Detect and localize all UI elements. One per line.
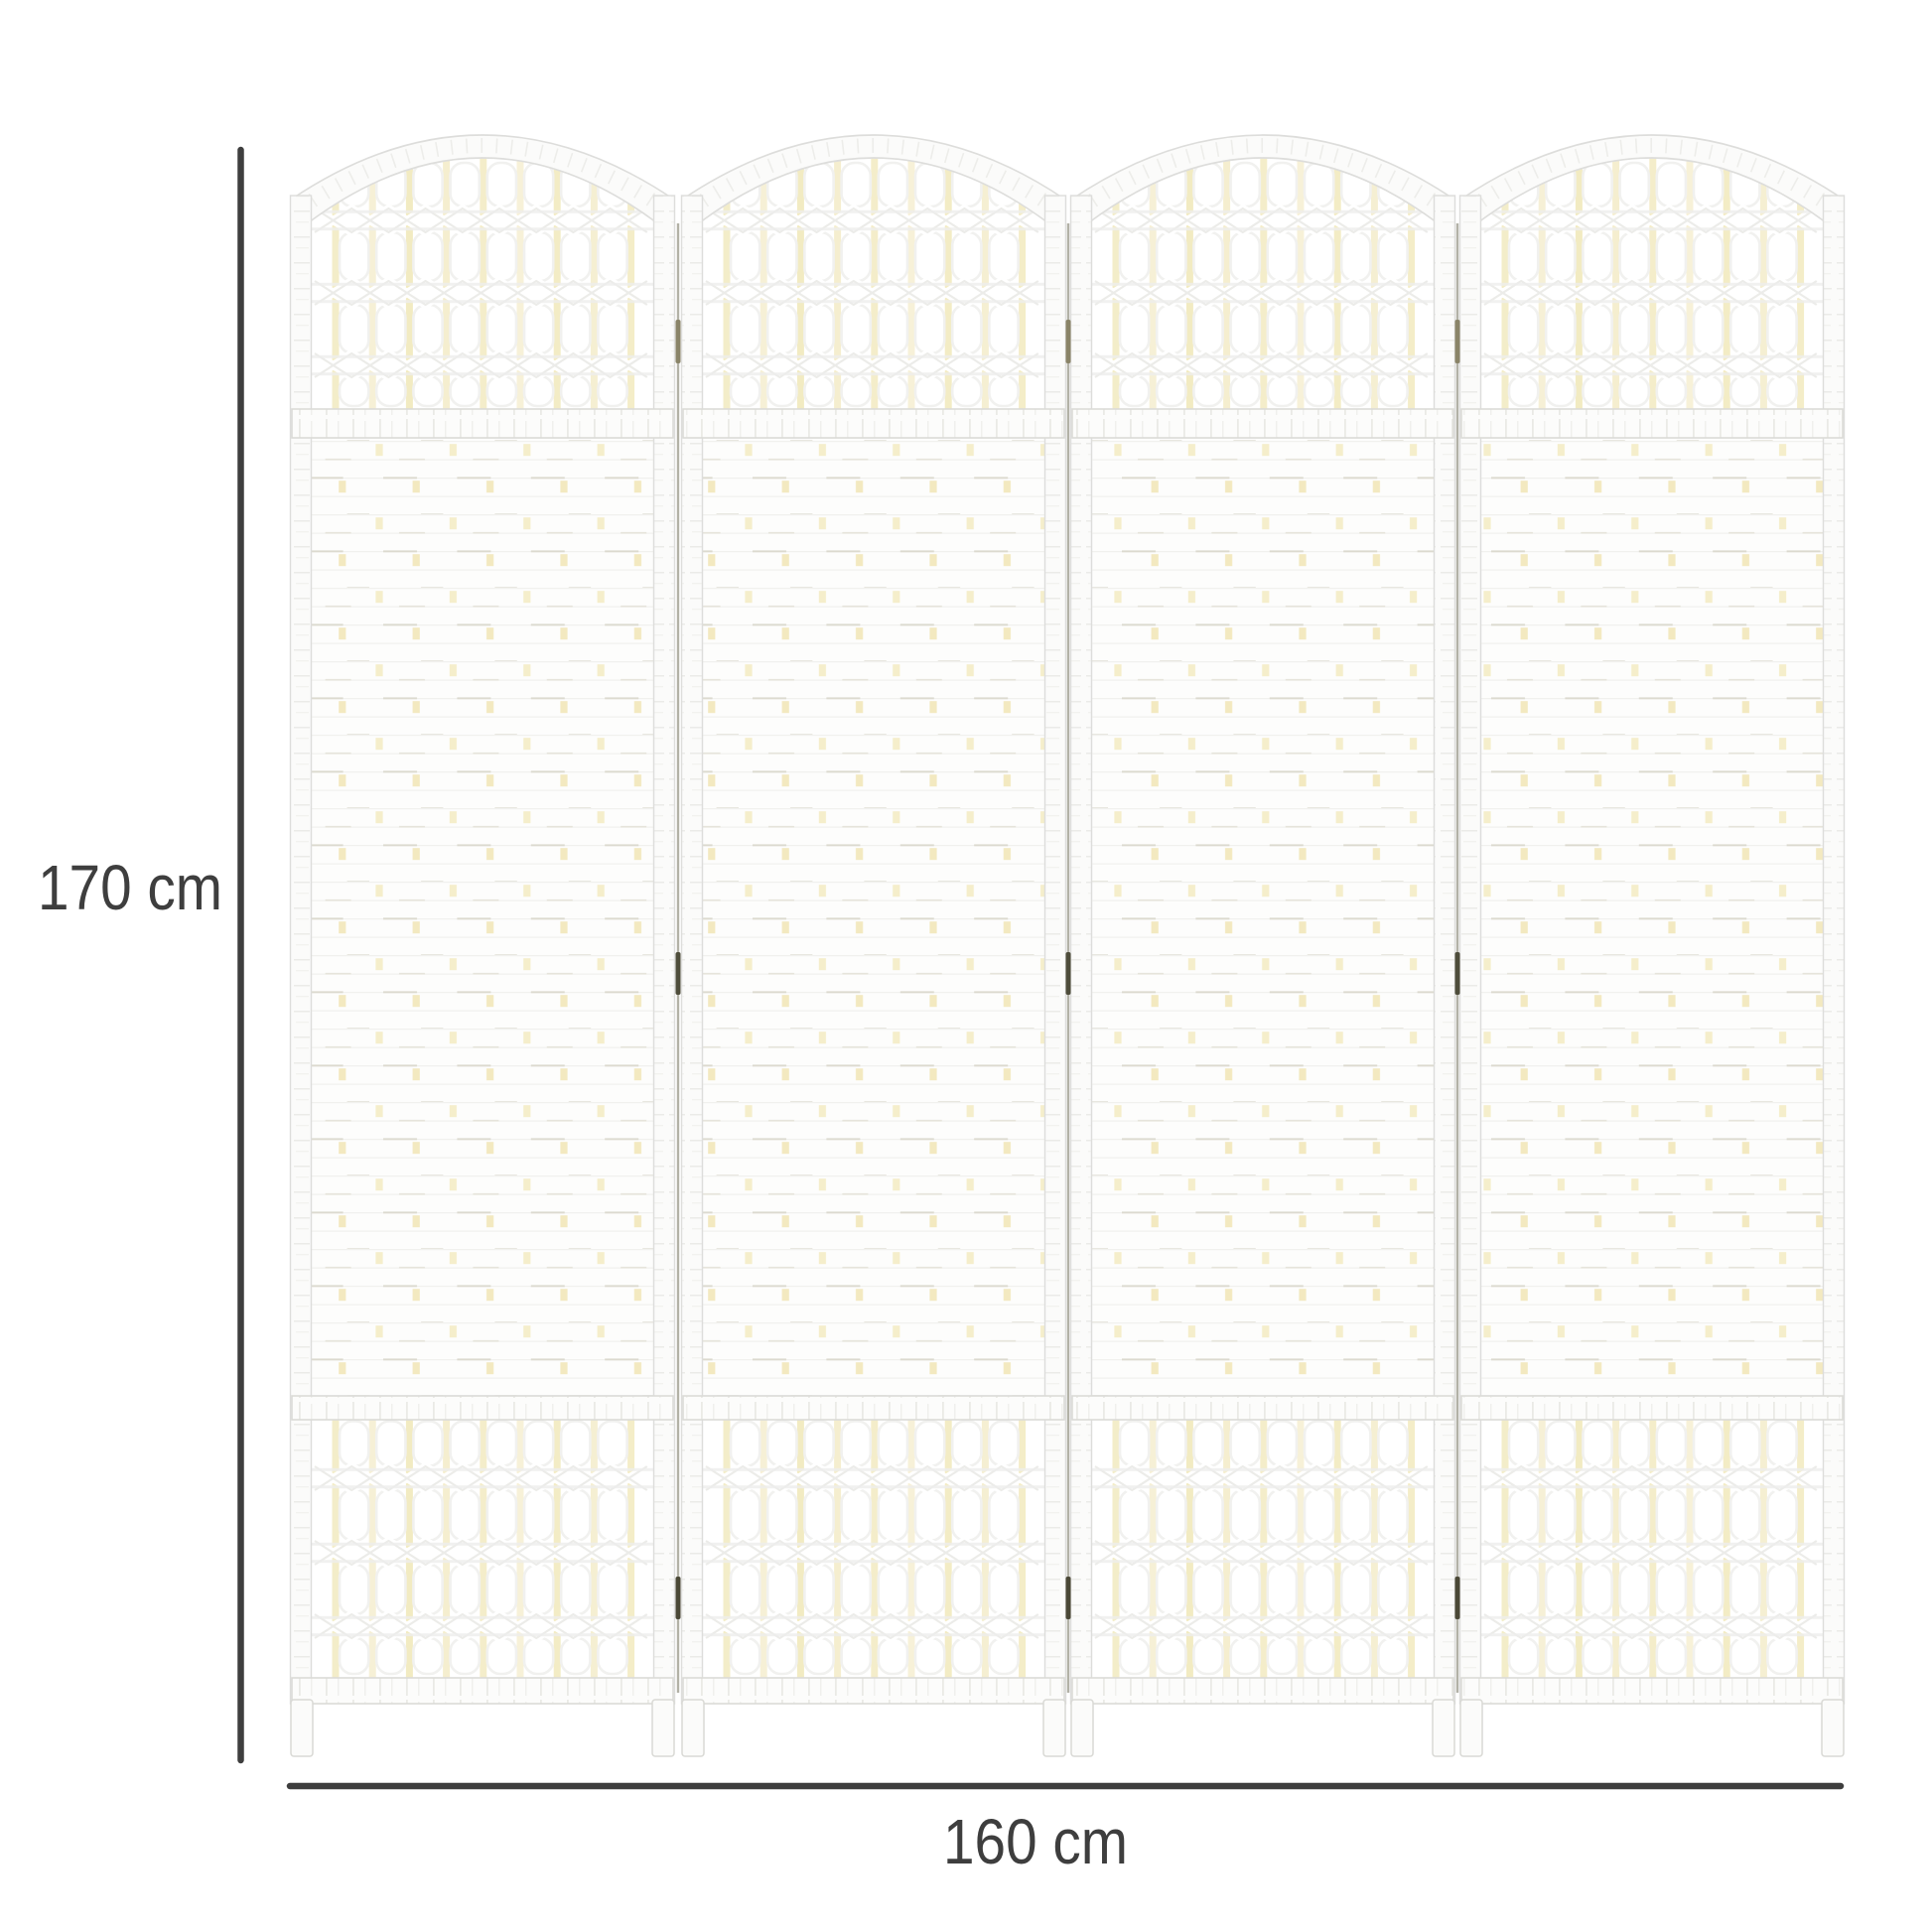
svg-text:160 cm: 160 cm	[943, 1806, 1128, 1877]
svg-text:170 cm: 170 cm	[38, 852, 222, 923]
